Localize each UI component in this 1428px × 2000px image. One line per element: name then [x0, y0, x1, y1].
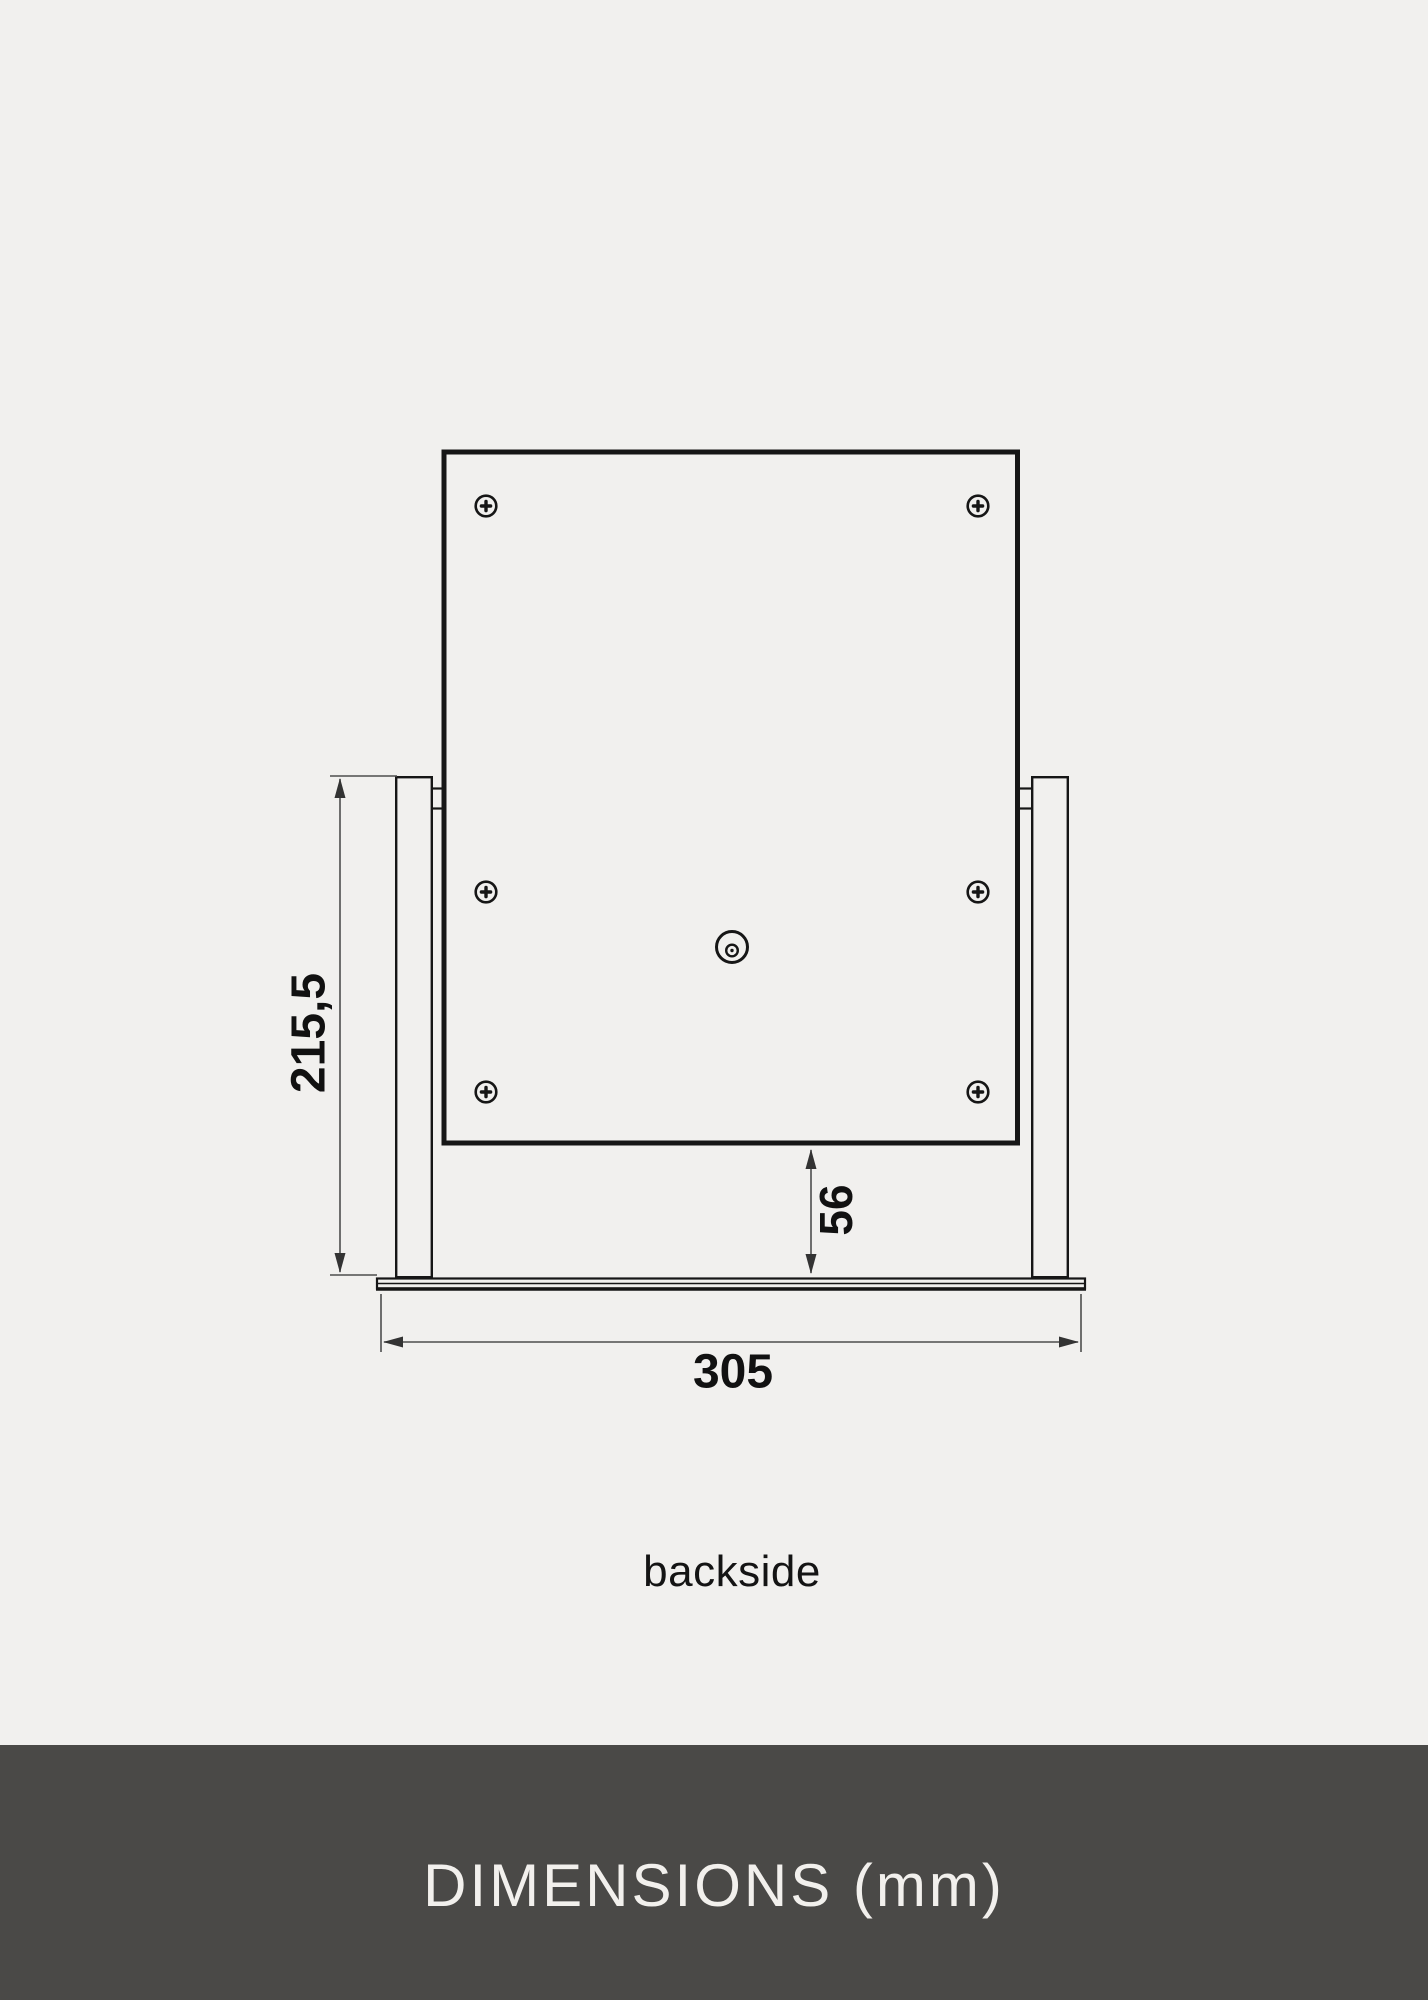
backside-dimension-drawing: 215,5 56 305 backside — [0, 0, 1428, 1745]
offset-dimension-label: 56 — [809, 1184, 863, 1235]
dimensions-footer-banner: DIMENSIONS (mm) — [0, 1745, 1428, 2000]
footer-title: DIMENSIONS (mm) — [423, 1851, 1005, 1920]
base-plate — [376, 1279, 1086, 1290]
right-post-rect — [1032, 777, 1068, 1277]
width-dimension-label: 305 — [693, 1345, 773, 1400]
height-dimension-label: 215,5 — [282, 973, 337, 1093]
left-post-rect — [396, 777, 432, 1277]
width-dimension-line — [381, 1294, 1081, 1352]
panel-rect — [444, 452, 1018, 1143]
backside-caption: backside — [643, 1547, 821, 1597]
right-hinge-bracket — [1019, 789, 1032, 809]
page-root: 215,5 56 305 backside DIMENSIONS (mm) — [0, 0, 1428, 2000]
height-dimension-line — [330, 776, 397, 1275]
dimension-drawing-svg — [0, 0, 1428, 1745]
